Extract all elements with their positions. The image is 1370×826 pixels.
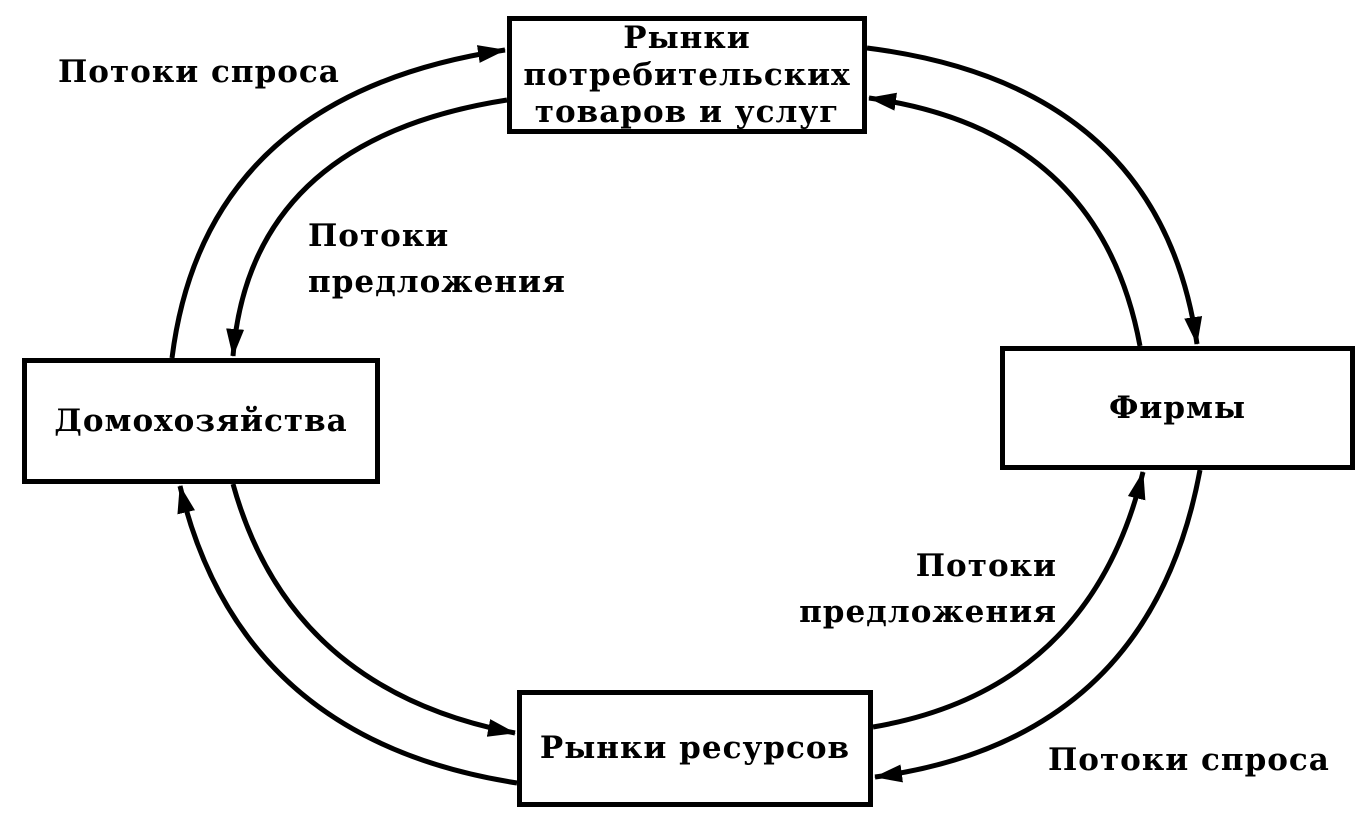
arrow-outer-bottom-left-resource-markets-to-households (180, 486, 517, 783)
arrow-inner-bottom-left-households-to-resource-markets (233, 484, 515, 733)
label-supply-flows-bottom-right: Потоки предложения (799, 543, 1057, 635)
arrow-outer-top-left-households-to-consumer-markets (172, 50, 505, 358)
arrow-inner-top-right-firms-to-consumer-markets (869, 98, 1140, 346)
label-demand-flows-top-left: Потоки спроса (58, 54, 340, 90)
node-firms-label: Фирмы (1109, 390, 1246, 427)
node-consumer-markets: Рынки потребительских товаров и услуг (507, 16, 867, 134)
node-households-label: Домохозяйства (54, 403, 347, 440)
label-supply-flows-top-left: Потоки предложения (308, 213, 566, 305)
node-resource-markets-label: Рынки ресурсов (540, 730, 850, 767)
circular-flow-diagram: Рынки потребительских товаров и услуг До… (0, 0, 1370, 826)
node-consumer-markets-label: Рынки потребительских товаров и услуг (523, 20, 850, 131)
arrow-outer-top-right-consumer-markets-to-firms (867, 48, 1197, 344)
node-resource-markets: Рынки ресурсов (517, 690, 873, 807)
node-households: Домохозяйства (22, 358, 380, 484)
node-firms: Фирмы (1000, 346, 1355, 470)
label-demand-flows-bottom-right: Потоки спроса (1048, 742, 1330, 778)
